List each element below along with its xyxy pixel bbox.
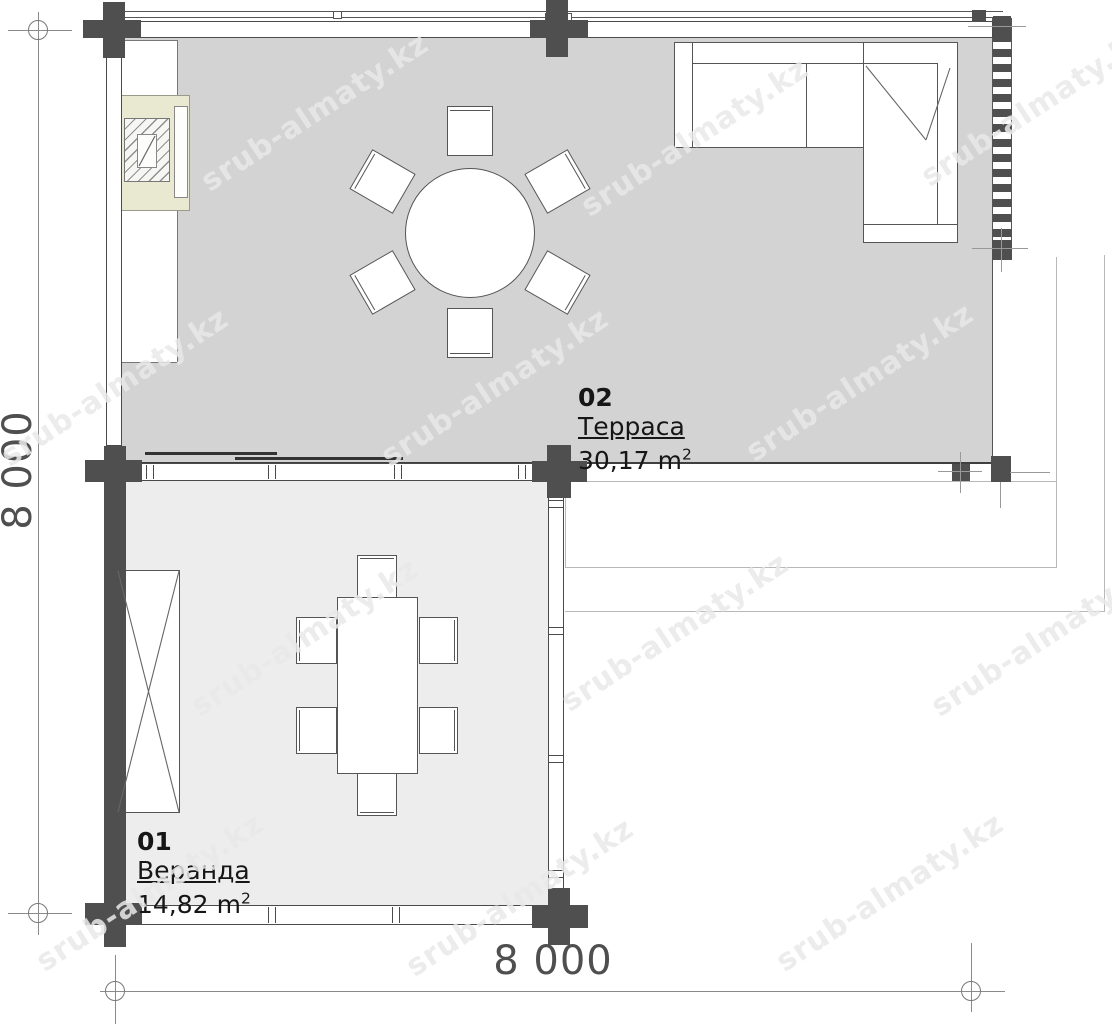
corner-sofa-vertical-section — [863, 42, 958, 243]
chair — [357, 773, 397, 816]
room-area: 30,17m2 — [578, 446, 692, 475]
post-terrace-bottom-right — [991, 456, 1011, 482]
dimension-line-bottom — [100, 991, 1005, 992]
axis-mark — [1010, 472, 1050, 473]
room-area: 14,82m2 — [137, 890, 251, 919]
chair — [296, 617, 337, 664]
watermark-text: srub-almaty.kz — [742, 788, 1038, 997]
dimension-bottom-value: 8 000 — [443, 938, 663, 982]
window-sill — [549, 500, 563, 508]
deck-outline-inner-vertical — [1056, 257, 1057, 482]
rect-table — [337, 597, 418, 774]
dimension-tick — [971, 943, 972, 1012]
chair — [447, 106, 493, 156]
deck-outline-inner — [565, 481, 1057, 568]
dimension-endpoint — [28, 20, 48, 40]
railing-end-block — [972, 10, 986, 22]
room-label-veranda: 01 Веранда 14,82m2 — [137, 827, 251, 919]
post-stairs-bottom — [992, 240, 1012, 260]
window-mullion — [146, 465, 154, 479]
post-axis — [952, 464, 970, 481]
round-table — [405, 168, 535, 298]
window-mullion — [392, 907, 400, 923]
post-middle-left — [85, 460, 142, 482]
wall-left-terrace — [106, 55, 122, 446]
room-number: 01 — [137, 827, 251, 856]
chair — [296, 707, 337, 754]
chair — [419, 707, 458, 754]
dimension-left-value: 8 000 — [0, 360, 39, 580]
room-name: Веранда — [137, 856, 251, 885]
sliding-door-leaf — [235, 457, 403, 460]
axis-mark — [1001, 228, 1002, 272]
sliding-door-leaf — [145, 452, 277, 455]
room-name: Терраса — [578, 412, 692, 441]
axis-mark — [972, 248, 1028, 249]
dimension-endpoint — [28, 903, 48, 923]
fireplace-side-panel — [174, 106, 188, 198]
chair — [447, 308, 493, 358]
post-top-left — [83, 20, 141, 38]
window-sill — [549, 870, 563, 878]
sofa-seat-divider — [806, 63, 807, 148]
sofa-back-line-vertical — [937, 63, 938, 225]
room-label-terrace: 02 Терраса 30,17m2 — [578, 383, 692, 475]
deck-outline-outer-horizontal — [565, 611, 1105, 612]
window-mullion — [268, 907, 276, 923]
wall-veranda-right — [548, 482, 564, 905]
chair — [357, 555, 397, 598]
room-number: 02 — [578, 383, 692, 412]
window-mullion — [268, 465, 276, 479]
axis-mark — [960, 452, 961, 493]
fireplace-firebox — [137, 134, 157, 168]
sofa-back-line-horizontal — [693, 63, 938, 64]
deck-outline-outer-vertical — [1104, 255, 1105, 612]
window-sill — [549, 627, 563, 635]
dimension-endpoint — [961, 981, 981, 1001]
dimension-endpoint — [105, 981, 125, 1001]
post-top-middle — [530, 20, 588, 38]
chair — [419, 617, 458, 664]
railing-connector — [333, 11, 342, 19]
axis-mark — [968, 26, 1026, 27]
sofa-left-armrest-line — [692, 42, 693, 148]
window-sill — [549, 755, 563, 763]
axis-mark — [1000, 482, 1001, 508]
window-mullion — [394, 465, 402, 479]
stairs — [992, 18, 1012, 260]
wall-veranda-left — [104, 446, 126, 947]
post-bottom-left — [85, 903, 142, 925]
post-bottom-right-veranda — [532, 905, 588, 928]
bench-box — [117, 570, 180, 813]
floor-plan: 8 000 8 000 02 Терраса 30,17m2 01 Веранд… — [0, 0, 1112, 1024]
wall-terrace-veranda — [130, 463, 540, 481]
sofa-bottom-armrest-line — [863, 224, 958, 225]
window-mullion — [518, 465, 526, 479]
